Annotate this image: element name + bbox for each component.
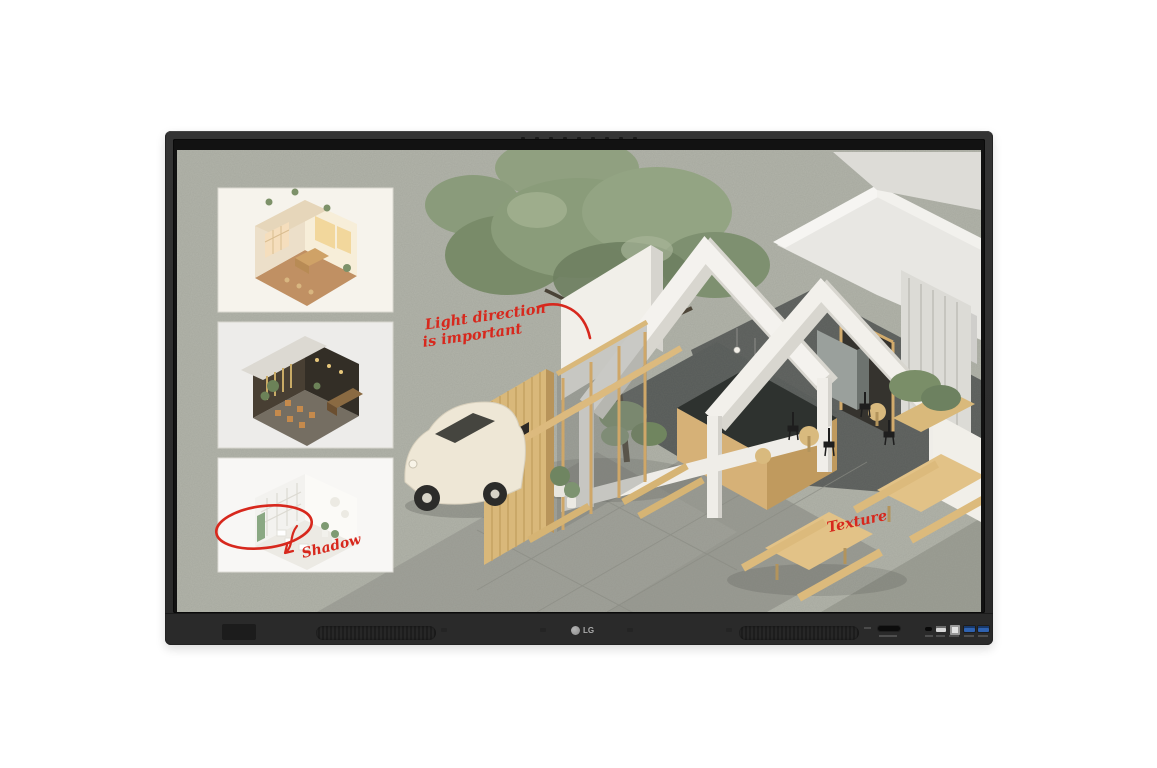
port-label <box>964 635 974 637</box>
speaker-grille-left <box>316 626 436 640</box>
lg-display-monitor: CAFE <box>165 131 993 645</box>
usb-c-port <box>925 627 932 631</box>
whiteboard-canvas[interactable]: CAFE <box>177 150 981 612</box>
lg-logo-text: LG <box>583 626 594 635</box>
port-label <box>978 635 988 637</box>
lg-logo-icon <box>571 626 580 635</box>
display-area: CAFE <box>177 150 981 612</box>
sensor-window <box>222 624 256 640</box>
speaker-grille-right <box>739 626 859 640</box>
bezel-mark <box>540 628 546 632</box>
thumbnail-warm-cafe[interactable] <box>218 188 393 312</box>
lg-logo: LG <box>571 626 594 635</box>
port-label <box>949 635 959 637</box>
bezel-mark <box>441 628 447 632</box>
usb3-port-1 <box>964 626 975 632</box>
bottom-bezel: LG <box>165 613 993 646</box>
port-label-dash <box>864 627 871 629</box>
usb-a-port <box>936 626 946 632</box>
port-label <box>936 635 945 637</box>
screen-panel: CAFE <box>173 139 985 613</box>
bezel-mark <box>627 628 633 632</box>
bezel-mark <box>726 628 732 632</box>
usb3-port-2 <box>978 626 989 632</box>
thumbnail-dark-lounge[interactable] <box>218 322 393 448</box>
port-label <box>879 635 897 637</box>
hdmi-port <box>878 626 900 631</box>
port-label <box>925 635 933 637</box>
